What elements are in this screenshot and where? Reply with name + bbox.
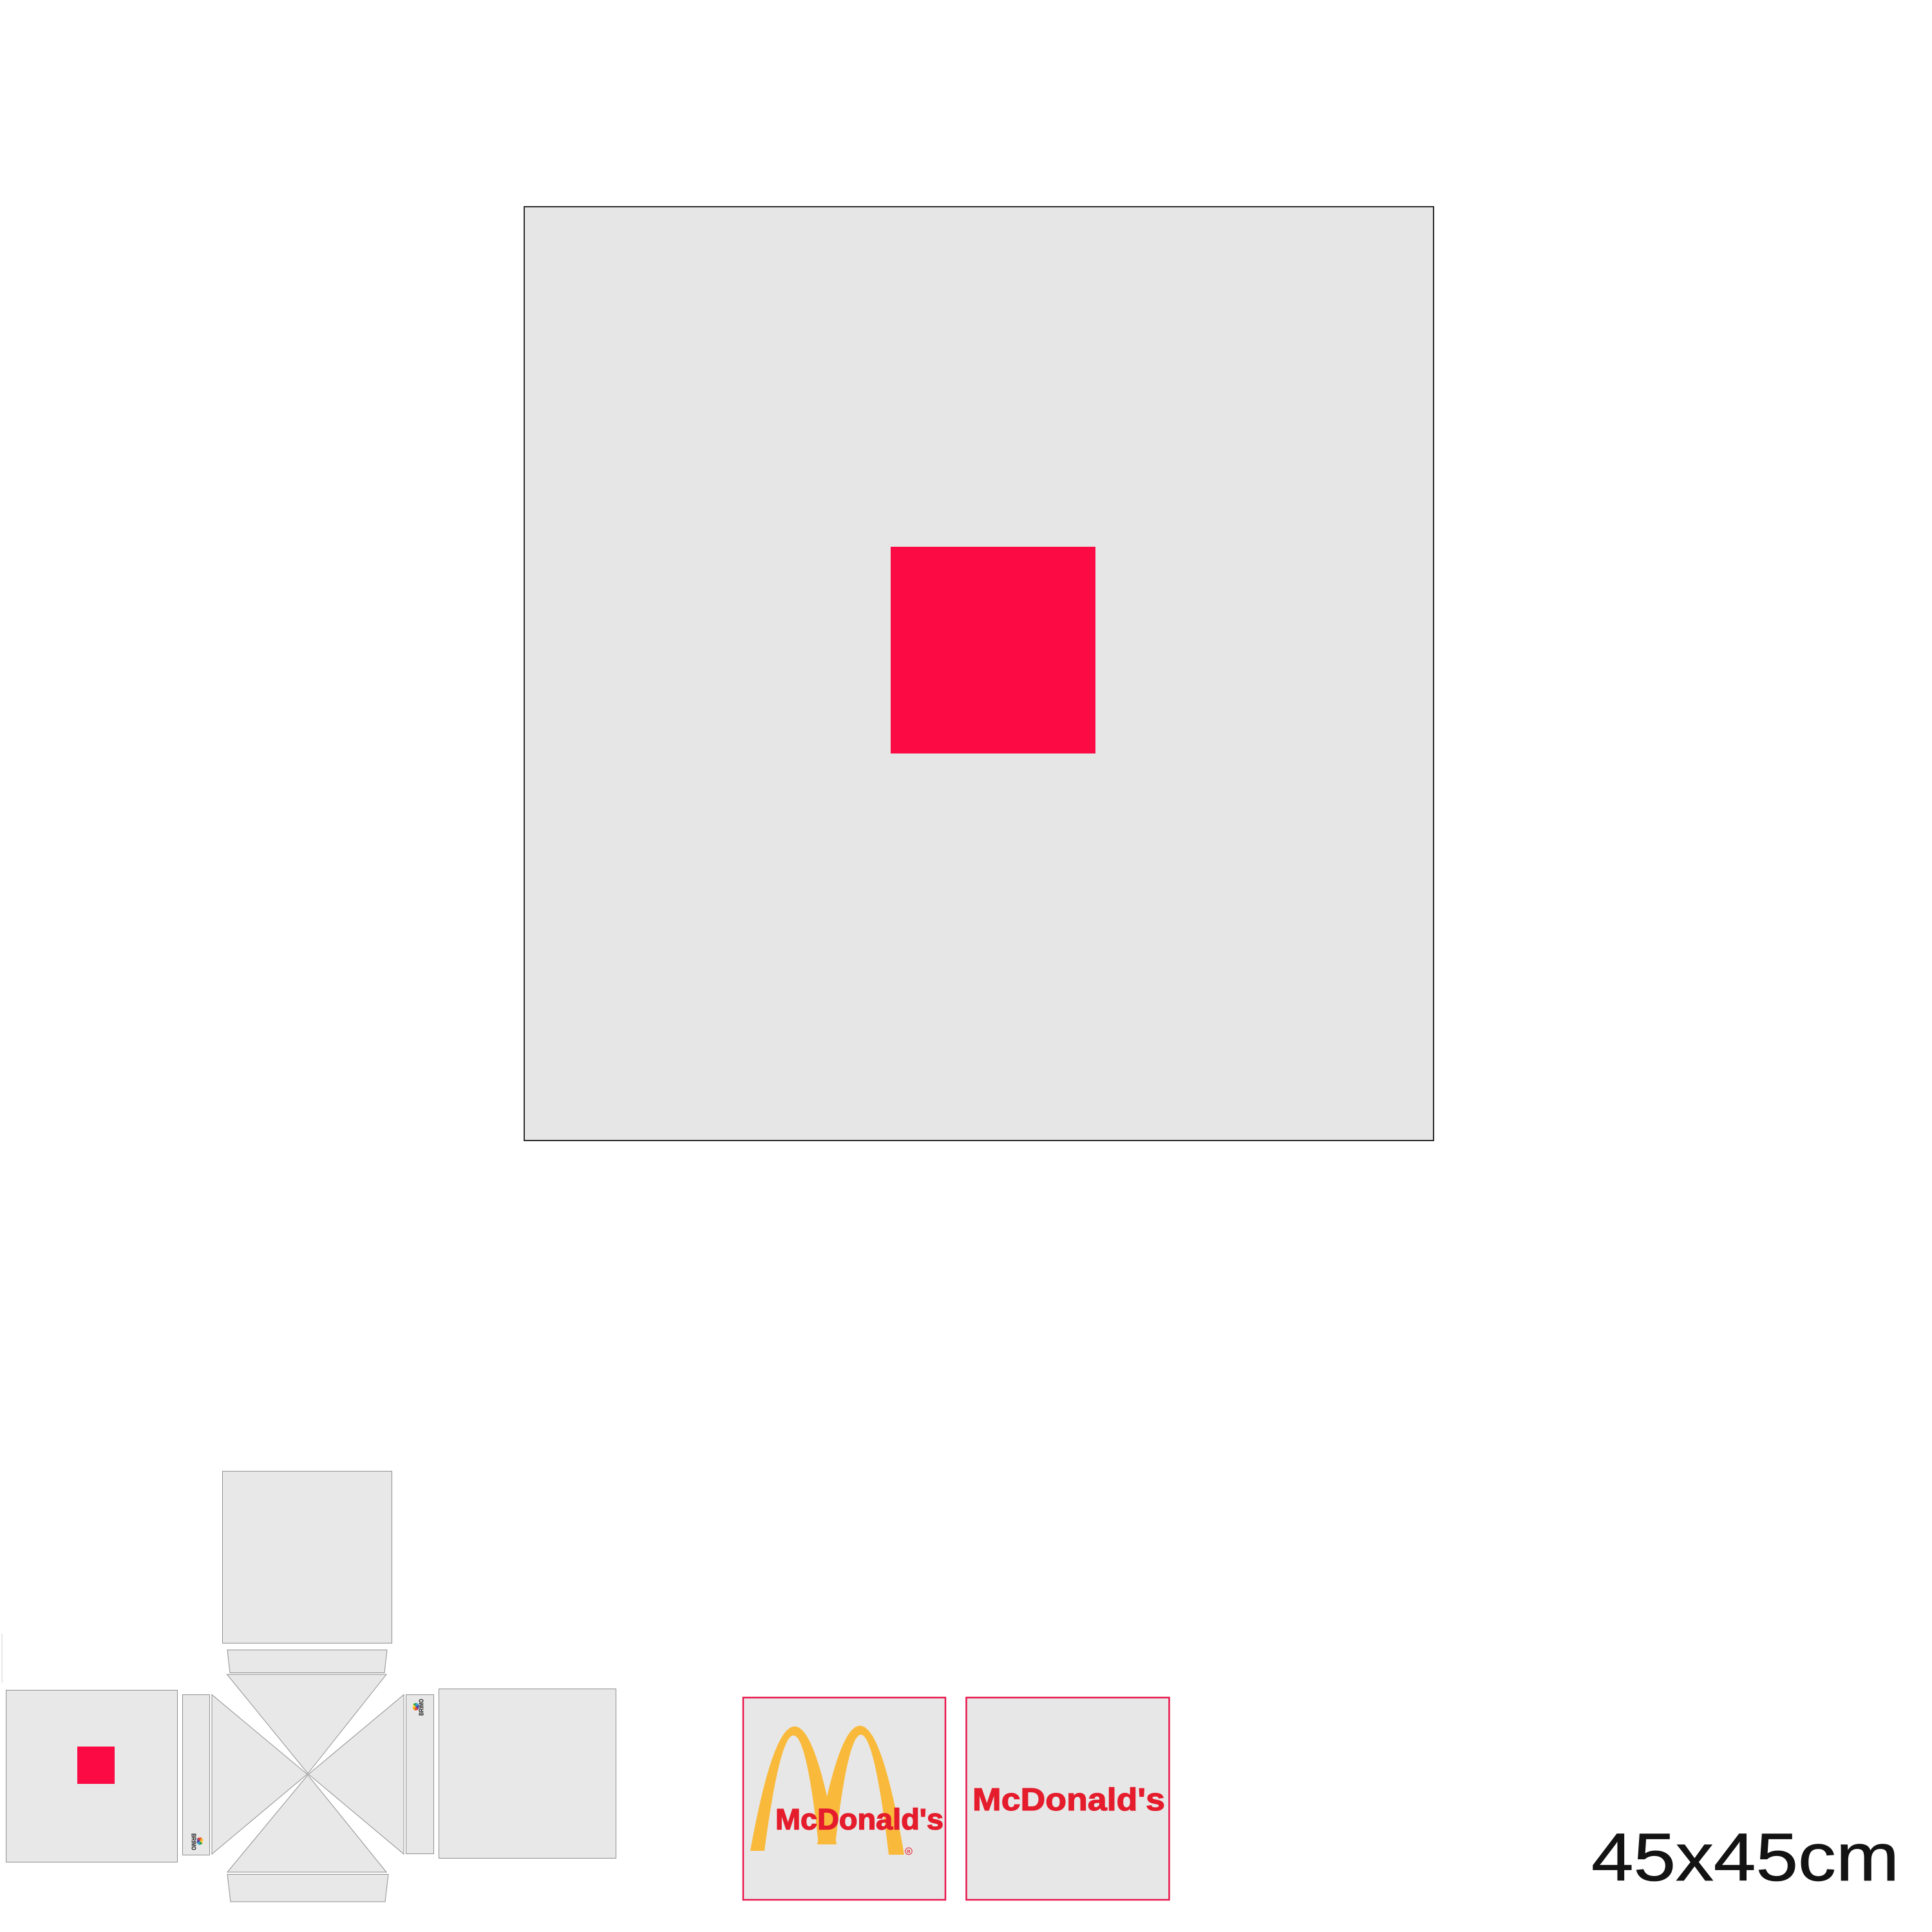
svg-text:McDonald's: McDonald's [775, 1803, 943, 1836]
svg-text:McDonald's: McDonald's [972, 1783, 1165, 1817]
svg-text:BRIMO: BRIMO [418, 1699, 426, 1716]
svg-text:45x45cm: 45x45cm [1591, 1820, 1899, 1895]
svg-text:R: R [907, 1849, 911, 1855]
svg-text:BRIMO: BRIMO [190, 1833, 198, 1850]
